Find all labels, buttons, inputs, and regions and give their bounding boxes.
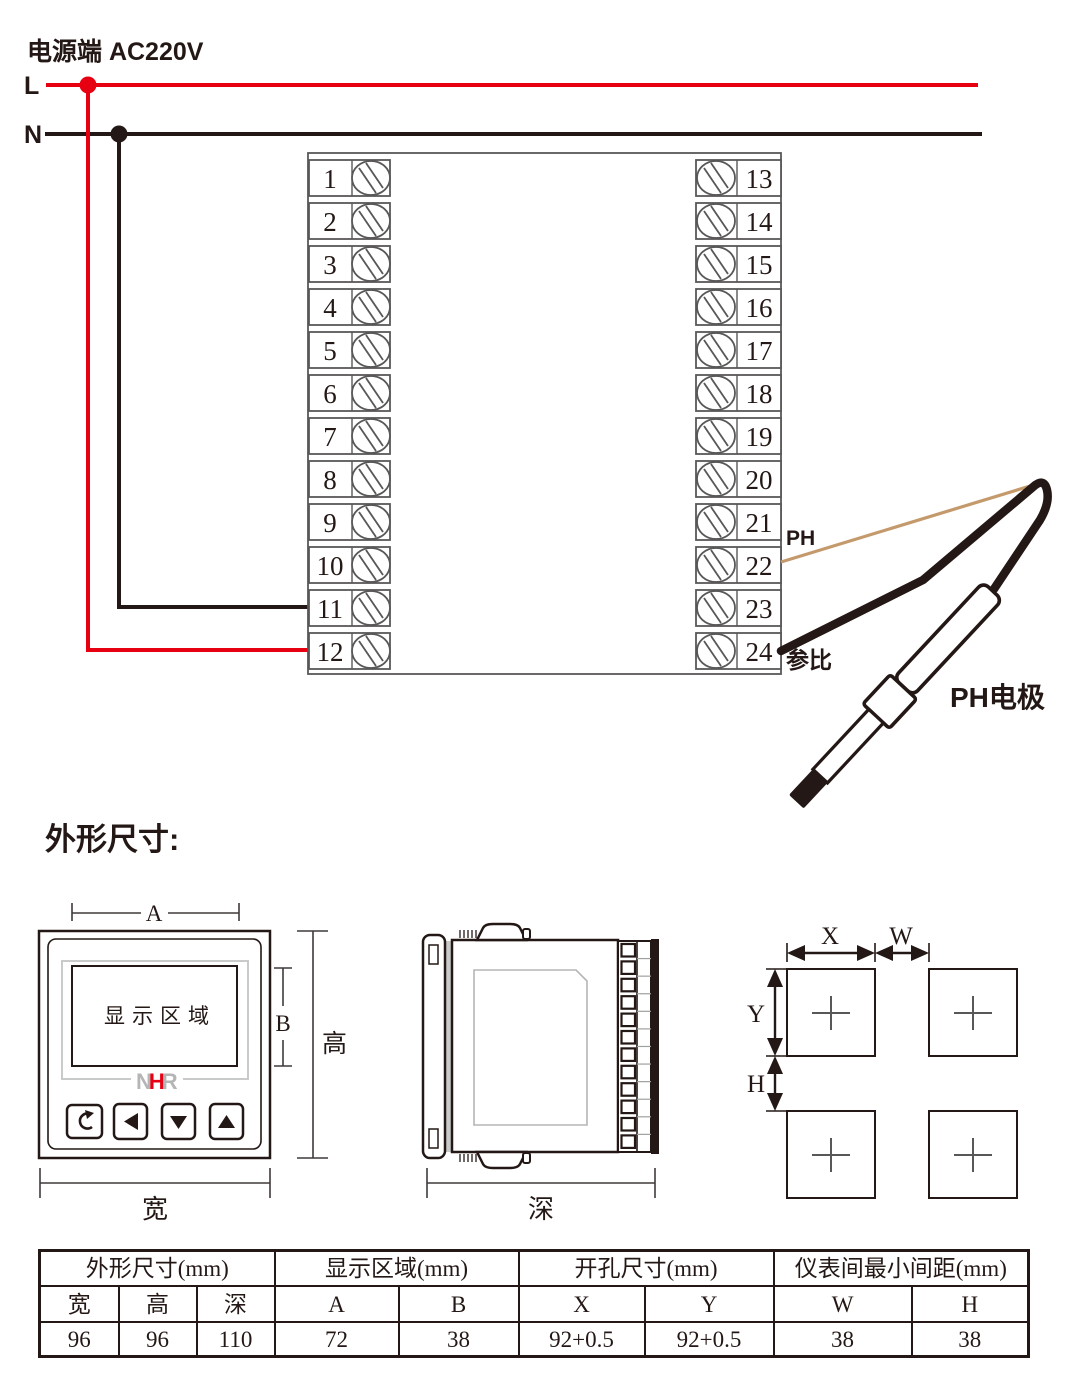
terminal-block: 123456789101112 131415161718192021222324 [308, 153, 781, 674]
terminal-11: 11 [309, 590, 390, 626]
bezel-clip-top [429, 945, 438, 964]
screw-terminal-icon [697, 290, 735, 324]
table-group-header: 开孔尺寸(mm) [519, 1251, 774, 1287]
terminal-21: 21 [696, 504, 781, 540]
reference-cable [781, 483, 1048, 651]
power-source-label: 电源端 AC220V [27, 38, 204, 66]
table-value-cell: 92+0.5 [519, 1322, 645, 1357]
terminal-number: 20 [746, 465, 773, 495]
screw-terminal-icon [697, 161, 735, 195]
electrode-shaft [813, 709, 884, 783]
terminal-14: 14 [696, 203, 781, 239]
neutral-line-label: N [24, 121, 42, 149]
terminal-number: 6 [323, 379, 337, 409]
dimension-table: 外形尺寸(mm)显示区域(mm)开孔尺寸(mm)仪表间最小间距(mm)宽高深AB… [38, 1249, 1030, 1358]
table-sub-header: A [275, 1286, 399, 1322]
screw-terminal-icon [352, 161, 390, 195]
electrode-handle [894, 582, 1002, 696]
terminal-number: 22 [746, 551, 773, 581]
electrode-label: PH电极 [950, 682, 1045, 713]
screw-terminal-icon [697, 462, 735, 496]
table-value-cell: 92+0.5 [645, 1322, 774, 1357]
screw-head-top [523, 929, 530, 939]
terminal-16: 16 [696, 289, 781, 325]
screw-terminal-icon [352, 591, 390, 625]
screw-terminal-icon [352, 204, 390, 238]
terminal-number: 11 [317, 594, 343, 624]
dim-w-label: W [889, 923, 913, 950]
neutral-drop-wire [119, 134, 310, 607]
terminal-23: 23 [696, 590, 781, 626]
terminal-15: 15 [696, 246, 781, 282]
rear-terminal-strip [618, 941, 651, 1152]
screw-terminal-icon [352, 505, 390, 539]
table-group-header: 外形尺寸(mm) [40, 1251, 275, 1287]
terminal-9: 9 [309, 504, 390, 540]
table-value-cell: 96 [119, 1322, 197, 1357]
screw-terminal-icon [697, 591, 735, 625]
table-sub-header: Y [645, 1286, 774, 1322]
terminal-number: 24 [746, 637, 774, 667]
side-body [452, 940, 618, 1152]
crosshair-icon [812, 996, 850, 1030]
screw-terminal-icon [352, 548, 390, 582]
dim-b-label: B [275, 1011, 290, 1036]
terminal-17: 17 [696, 332, 781, 368]
live-drop-wire [88, 85, 310, 650]
reference-wire-label: 参比 [786, 647, 832, 673]
terminal-number: 3 [323, 250, 337, 280]
mounting-clamp-top [460, 924, 530, 940]
terminal-number: 8 [323, 465, 337, 495]
table-value-cell: 96 [40, 1322, 119, 1357]
terminal-number: 13 [746, 164, 773, 194]
terminal-number: 23 [746, 594, 773, 624]
screw-terminal-icon [697, 548, 735, 582]
terminal-20: 20 [696, 461, 781, 497]
wiring-and-dimension-diagram: 电源端 AC220V L N 123456789101112 131415161… [0, 0, 1080, 1245]
screw-terminal-icon [697, 634, 735, 668]
terminal-19: 19 [696, 418, 781, 454]
table-value-cell: 38 [774, 1322, 912, 1357]
terminal-12: 12 [309, 633, 390, 669]
table-sub-header: X [519, 1286, 645, 1322]
terminal-number: 2 [323, 207, 337, 237]
table-value-cell: 110 [197, 1322, 275, 1357]
crosshair-icon [954, 1138, 992, 1172]
terminal-1: 1 [309, 160, 390, 196]
display-area-label: 显示区域 [104, 1005, 216, 1028]
crosshair-icons [812, 996, 992, 1172]
side-bezel [423, 935, 445, 1158]
terminal-18: 18 [696, 375, 781, 411]
ph-wire [781, 483, 1040, 562]
screw-terminal-icon [697, 376, 735, 410]
brand-logo: NHR [136, 1069, 178, 1094]
table-sub-header: H [912, 1286, 1029, 1322]
dim-h-label: H [747, 1071, 765, 1098]
table-sub-header: 深 [197, 1286, 275, 1322]
terminal-number: 9 [323, 508, 337, 538]
bezel-clip-bottom [429, 1129, 438, 1148]
table-group-header: 仪表间最小间距(mm) [774, 1251, 1029, 1287]
terminal-10: 10 [309, 547, 390, 583]
table-group-header: 显示区域(mm) [275, 1251, 519, 1287]
terminal-number: 19 [746, 422, 773, 452]
cutout-squares [787, 969, 1017, 1198]
dimension-table-wrap: 外形尺寸(mm)显示区域(mm)开孔尺寸(mm)仪表间最小间距(mm)宽高深AB… [38, 1249, 1027, 1358]
terminal-number: 16 [746, 293, 773, 323]
terminal-number: 18 [746, 379, 773, 409]
return-button [67, 1105, 102, 1138]
terminal-2: 2 [309, 203, 390, 239]
terminal-number: 21 [746, 508, 773, 538]
screw-terminal-icon [352, 634, 390, 668]
dim-depth-label: 深 [528, 1194, 554, 1224]
terminal-number: 5 [323, 336, 337, 366]
dim-width-label: 宽 [142, 1194, 168, 1224]
terminal-number: 14 [746, 207, 774, 237]
screw-terminal-icon [352, 290, 390, 324]
terminal-number: 17 [746, 336, 773, 366]
terminal-number: 12 [317, 637, 344, 667]
mounting-clamp-bottom [460, 1152, 530, 1168]
terminal-number: 10 [317, 551, 344, 581]
table-value-cell: 38 [399, 1322, 519, 1357]
ph-wire-label: PH [786, 527, 815, 550]
terminal-number: 4 [323, 293, 337, 323]
table-sub-header: 高 [119, 1286, 197, 1322]
live-junction-dot [80, 77, 97, 94]
screw-terminal-icon [352, 247, 390, 281]
dim-height-label: 高 [322, 1030, 347, 1058]
table-sub-header: 宽 [40, 1286, 119, 1322]
terminal-6: 6 [309, 375, 390, 411]
terminal-7: 7 [309, 418, 390, 454]
screw-terminal-icon [352, 376, 390, 410]
side-view-drawing: 深 [423, 924, 659, 1224]
rear-cover-bar [651, 939, 659, 1154]
dim-y-label: Y [747, 1001, 765, 1028]
live-line-label: L [24, 72, 39, 100]
neutral-junction-dot [111, 126, 128, 143]
dim-a-label: A [146, 901, 163, 926]
screw-terminal-icon [697, 419, 735, 453]
terminal-number: 1 [323, 164, 337, 194]
terminal-4: 4 [309, 289, 390, 325]
crosshair-icon [954, 996, 992, 1030]
screw-thread-top [460, 930, 476, 938]
screw-terminal-icon [352, 333, 390, 367]
screw-thread-bottom [460, 1154, 476, 1162]
terminal-5: 5 [309, 332, 390, 368]
dimensions-heading: 外形尺寸: [45, 822, 179, 857]
terminal-number: 15 [746, 250, 773, 280]
table-sub-header: W [774, 1286, 912, 1322]
terminal-13: 13 [696, 160, 781, 196]
screw-terminal-icon [697, 333, 735, 367]
cutout-view-drawing: X W Y H [747, 923, 1017, 1198]
table-value-cell: 38 [912, 1322, 1029, 1357]
screw-terminal-icon [697, 247, 735, 281]
screw-terminal-icon [697, 204, 735, 238]
terminal-number: 7 [323, 422, 337, 452]
dim-x-label: X [821, 923, 839, 950]
terminal-22: 22 [696, 547, 781, 583]
table-sub-header: B [399, 1286, 519, 1322]
table-value-cell: 72 [275, 1322, 399, 1357]
screw-terminal-icon [697, 505, 735, 539]
terminal-24: 24 [696, 633, 781, 669]
datasheet-page: 电源端 AC220V L N 123456789101112 131415161… [0, 0, 1080, 1396]
screw-terminal-icon [352, 462, 390, 496]
screw-terminal-icon [352, 419, 390, 453]
terminal-3: 3 [309, 246, 390, 282]
terminal-8: 8 [309, 461, 390, 497]
screw-head-bottom [523, 1153, 530, 1163]
crosshair-icon [812, 1138, 850, 1172]
front-view-drawing: 显示区域 NHR A B [39, 901, 347, 1224]
